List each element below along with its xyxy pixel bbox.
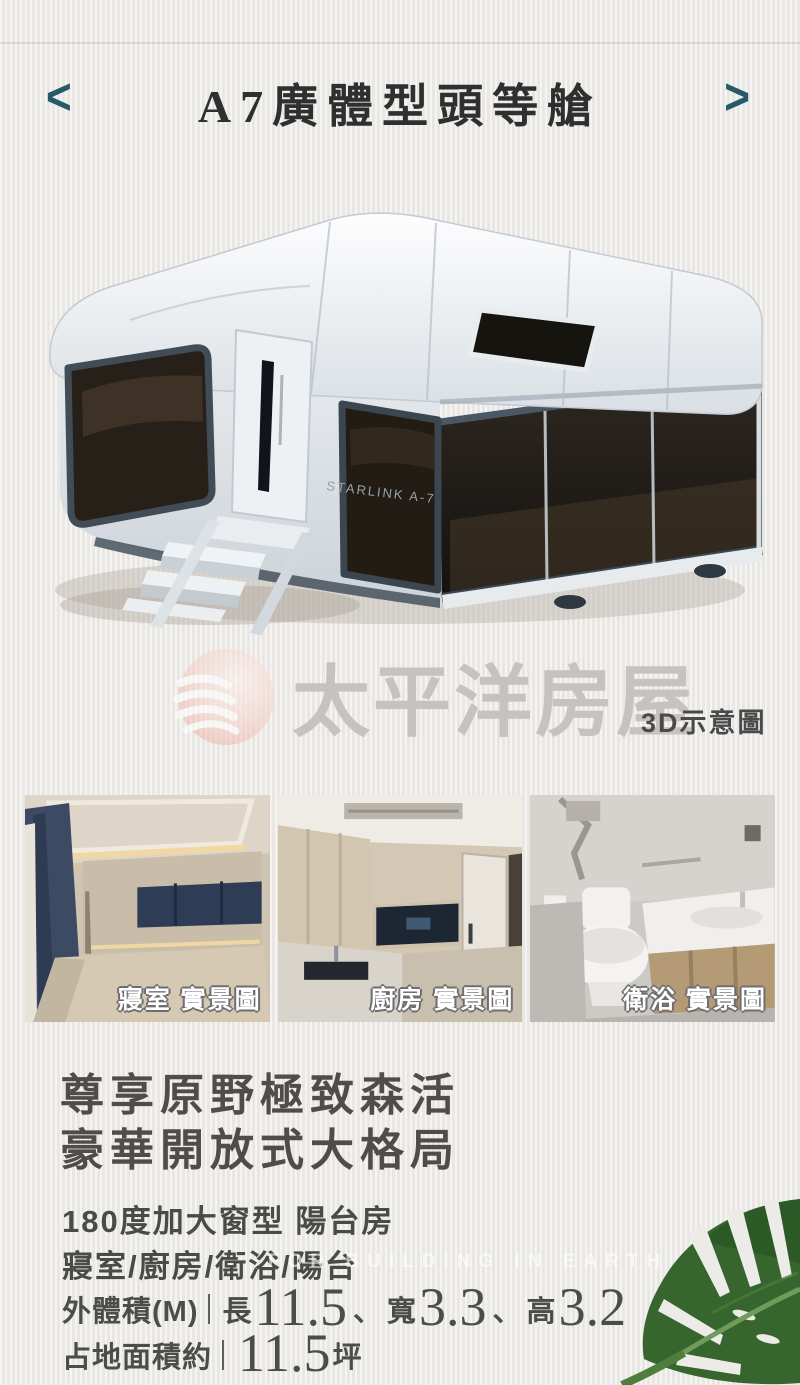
dim-width-name: 寬 [387,1288,417,1330]
page-title: A7廣體型頭等艙 [0,70,800,136]
area-value: 11.5 [238,1326,331,1380]
headline-line1: 尊享原野極致森活 [60,1068,460,1123]
kitchen-photo: 廚房 實景圖 [278,795,523,1022]
monstera-leaf-decoration [592,1193,800,1385]
area-unit: 坪 [333,1334,363,1376]
bathroom-photo: 衛浴 實景圖 [530,795,775,1022]
bedroom-photo: 寢室 實景圖 [25,795,270,1022]
headline: 尊享原野極致森活 豪華開放式大格局 [60,1068,460,1178]
bathroom-photo-label: 衛浴 實景圖 [623,980,767,1016]
render-caption: 3D示意圖 [641,701,767,740]
capsule-house-card: < A7廣體型頭等艙 > [0,0,800,1385]
pacific-house-logo-icon [170,645,280,749]
capsule-house-3d-render: STARLINK A-7 [10,190,790,635]
separator-bar [222,1340,224,1370]
dim-separator: 、 [353,1288,383,1330]
dim-separator: 、 [493,1288,523,1330]
area-row: 占地面積約 11.5 坪 [62,1328,363,1382]
headline-line2: 豪華開放式大格局 [60,1123,460,1178]
entry-door [232,330,312,522]
brand-watermark-text: 太平洋房屋 [292,640,697,752]
chevron-right-icon[interactable]: > [724,73,750,124]
photo-strip: 寢室 實景圖 廚房 實景圖 [25,795,775,1022]
dims-label: 外體積(M) [62,1288,198,1330]
kitchen-photo-label: 廚房 實景圖 [370,980,514,1016]
left-window [68,348,212,525]
dim-height-name: 高 [527,1288,557,1330]
area-label: 占地面積約 [62,1334,212,1376]
feature-line-window: 180度加大窗型 陽台房 [62,1196,394,1241]
top-crease-line [0,42,800,44]
faint-english-watermark: FOR BUILDING IN EARTH [268,1251,738,1273]
dim-width-value: 3.3 [419,1280,487,1334]
bedroom-photo-label: 寢室 實景圖 [118,980,262,1016]
separator-bar [208,1294,210,1324]
